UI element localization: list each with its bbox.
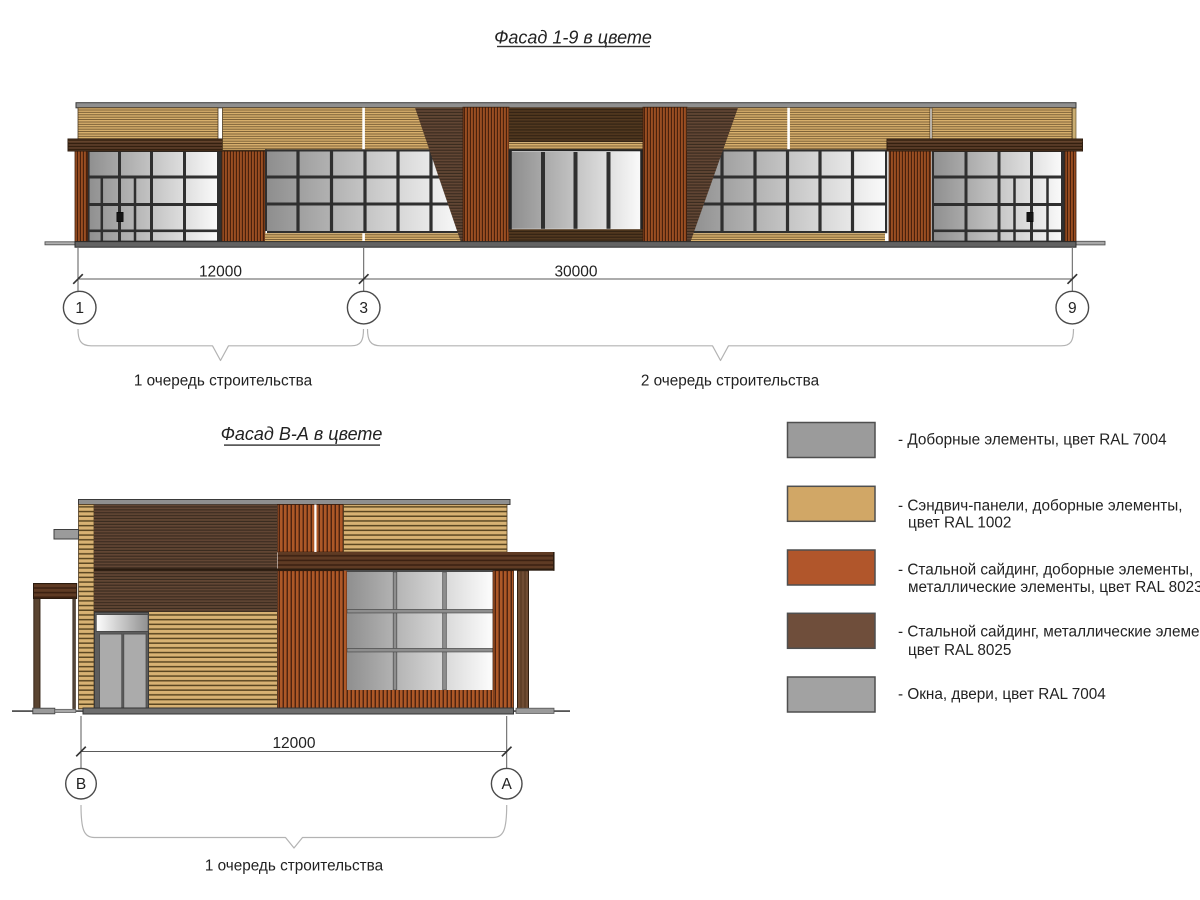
svg-text:30000: 30000	[554, 264, 597, 281]
svg-text:12000: 12000	[272, 735, 315, 752]
svg-text:9: 9	[1068, 300, 1077, 317]
svg-text:1: 1	[75, 300, 84, 317]
svg-text:- Стальной сайдинг, доборные э: - Стальной сайдинг, доборные элементы,	[898, 562, 1193, 579]
svg-text:1 очередь строительства: 1 очередь строительства	[205, 858, 384, 875]
svg-text:- Сэндвич-панели, доборные эле: - Сэндвич-панели, доборные элементы,	[898, 498, 1183, 515]
svg-text:12000: 12000	[199, 264, 242, 281]
svg-text:2 очередь строительства: 2 очередь строительства	[641, 373, 820, 390]
svg-text:- Стальной сайдинг, металличес: - Стальной сайдинг, металлические элемен…	[898, 624, 1200, 641]
svg-text:Фасад В-А в цвете: Фасад В-А в цвете	[221, 424, 383, 444]
svg-text:1 очередь строительства: 1 очередь строительства	[134, 373, 313, 390]
svg-text:цвет RAL 8025: цвет RAL 8025	[908, 642, 1011, 659]
svg-text:А: А	[502, 776, 513, 793]
svg-text:- Окна, двери, цвет RAL 7004: - Окна, двери, цвет RAL 7004	[898, 686, 1106, 703]
svg-text:цвет RAL 1002: цвет RAL 1002	[908, 515, 1011, 532]
svg-text:Фасад 1-9 в цвете: Фасад 1-9 в цвете	[494, 27, 652, 47]
svg-text:В: В	[76, 776, 86, 793]
svg-text:металлические элементы, цвет R: металлические элементы, цвет RAL 8023	[908, 579, 1200, 596]
svg-text:3: 3	[359, 300, 368, 317]
svg-text:- Доборные элементы, цвет RAL: - Доборные элементы, цвет RAL 7004	[898, 432, 1167, 449]
